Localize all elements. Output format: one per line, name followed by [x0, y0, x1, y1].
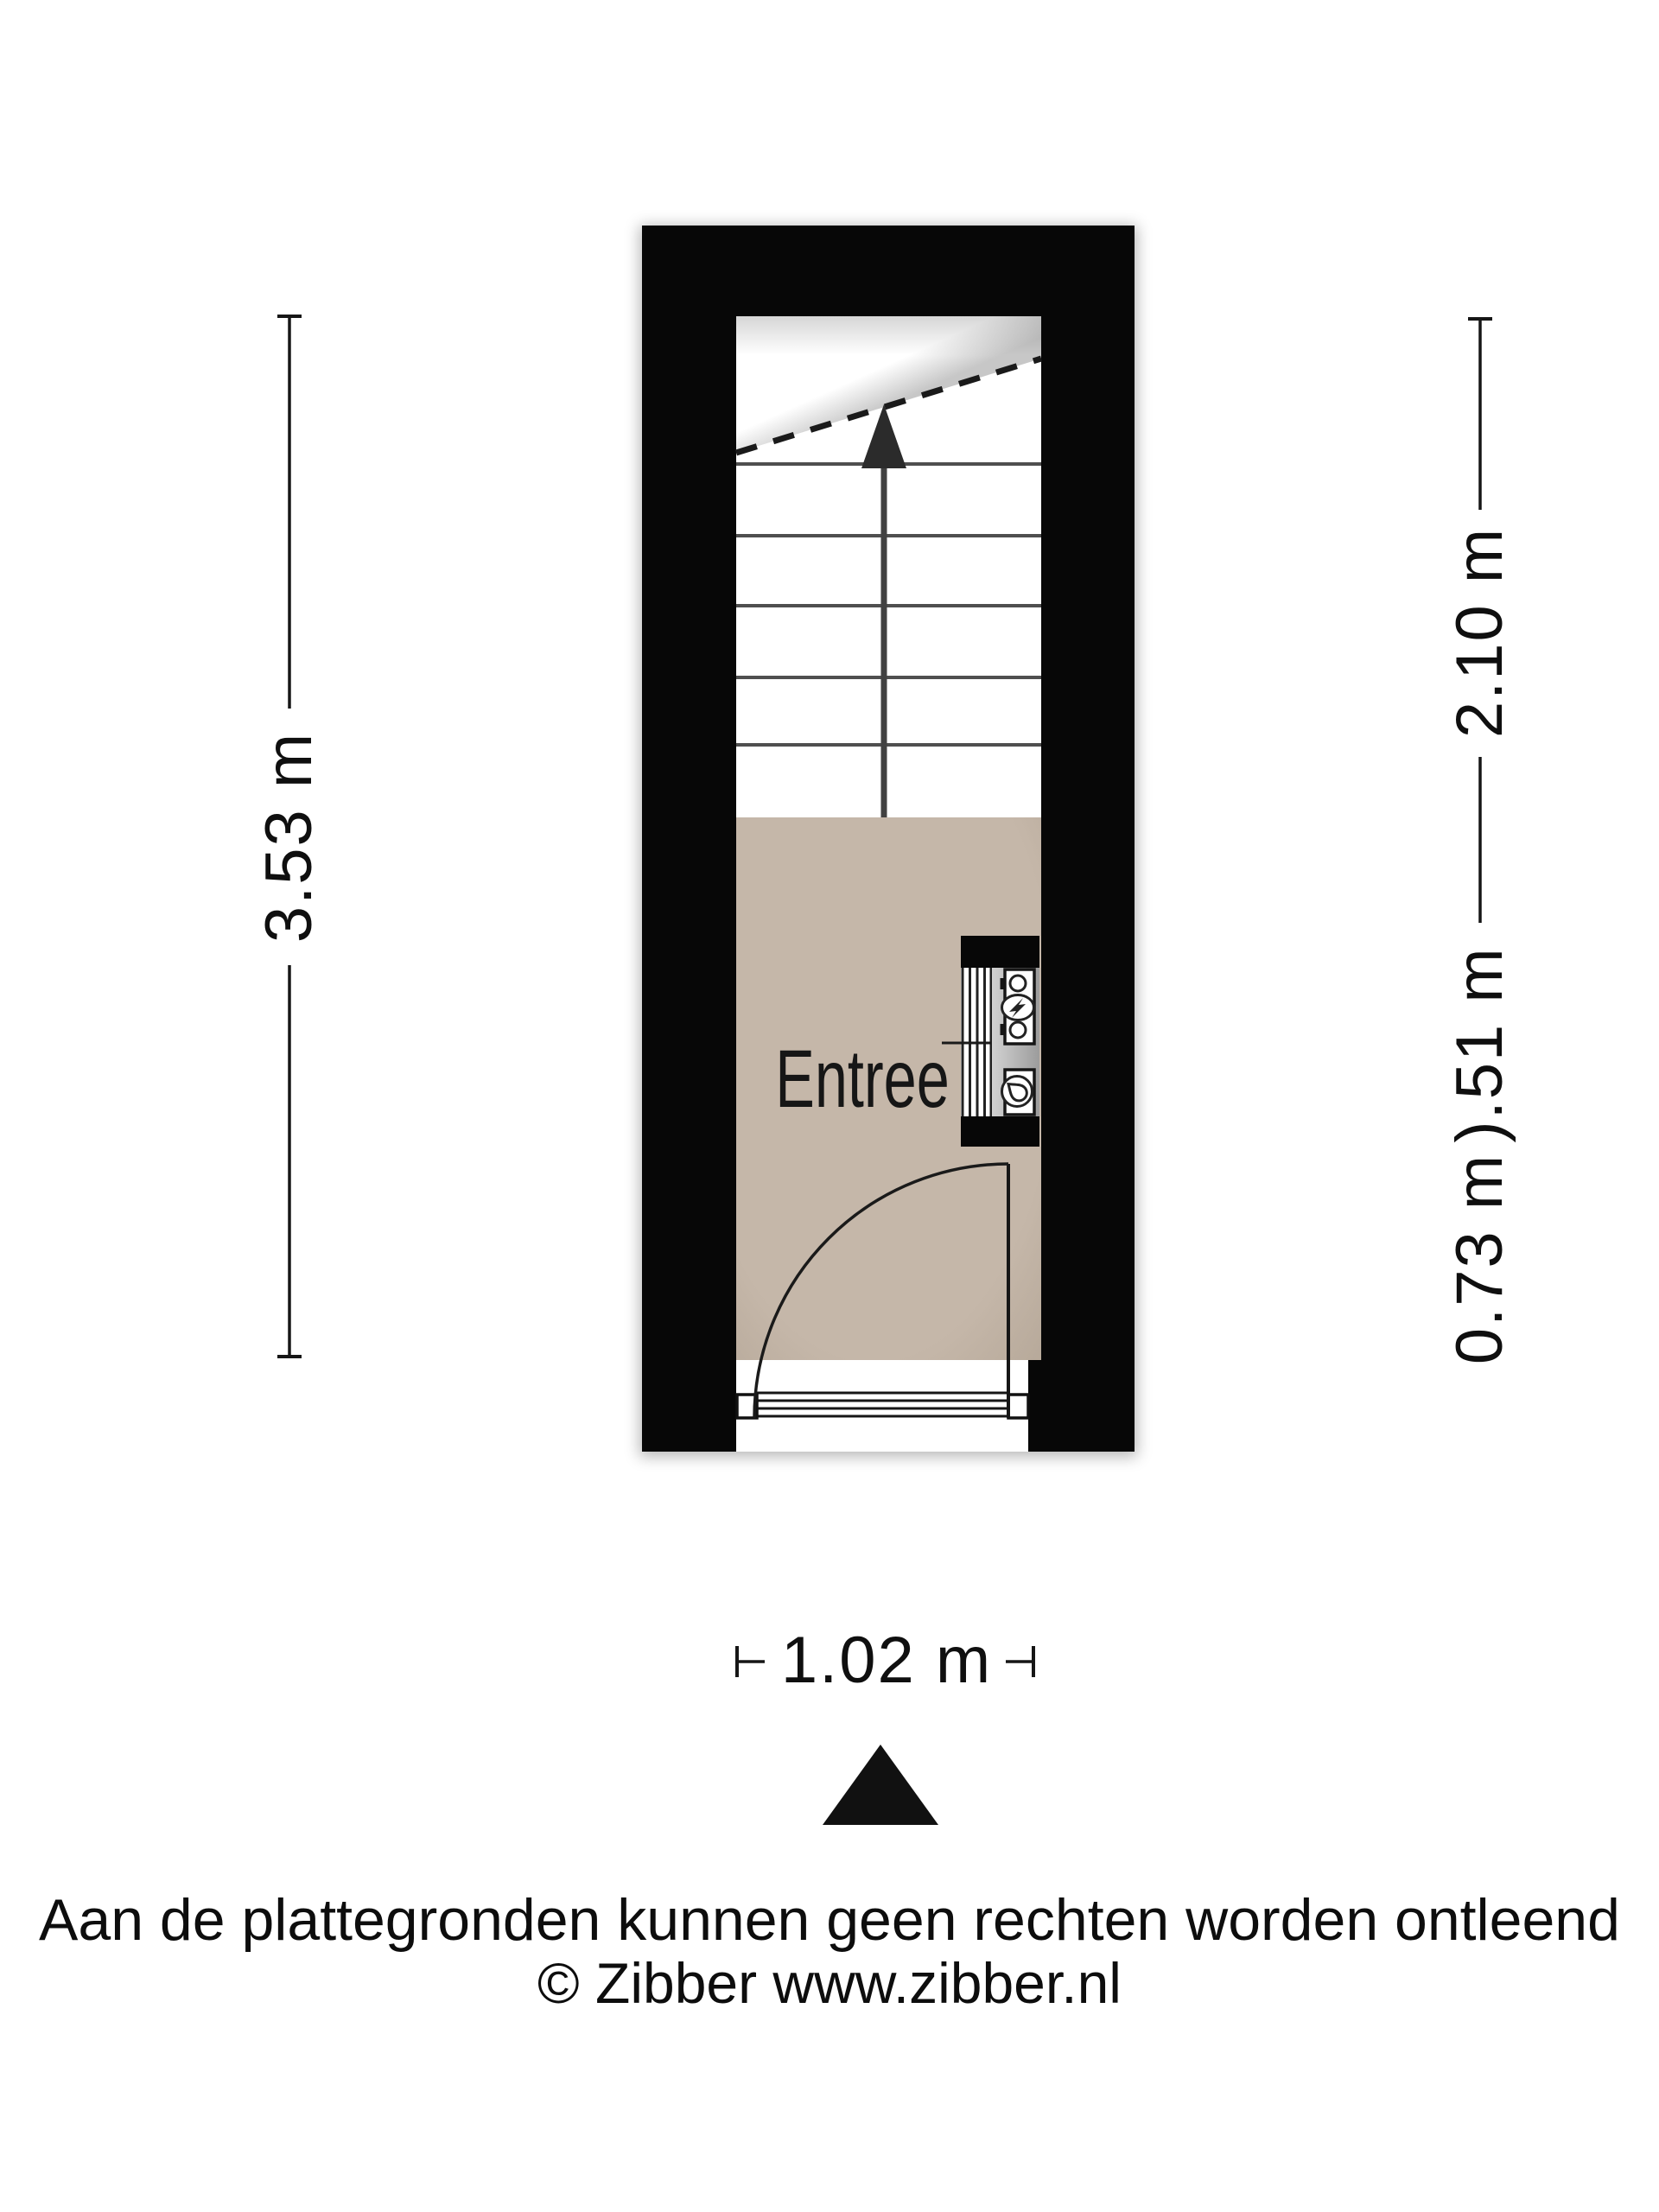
copyright-text: © Zibber www.zibber.nl	[0, 1953, 1659, 2013]
north-arrow-icon	[823, 1745, 938, 1825]
room-label-entree: Entree	[769, 1039, 956, 1122]
dimension-label-bottom: 1.02 m	[748, 1622, 1025, 1700]
dimension-label-right-top: 2.10 m	[1441, 494, 1519, 771]
dimension-label-left: 3.53 m	[251, 699, 328, 976]
floorplan-page: Entree 3.53 m 2.10 m ).51 m 0.73 m 1.02 …	[0, 0, 1659, 2212]
disclaimer-text: Aan de plattegronden kunnen geen rechten…	[0, 1889, 1659, 1951]
dimension-label-right-bottom: 0.73 m	[1441, 1121, 1519, 1397]
